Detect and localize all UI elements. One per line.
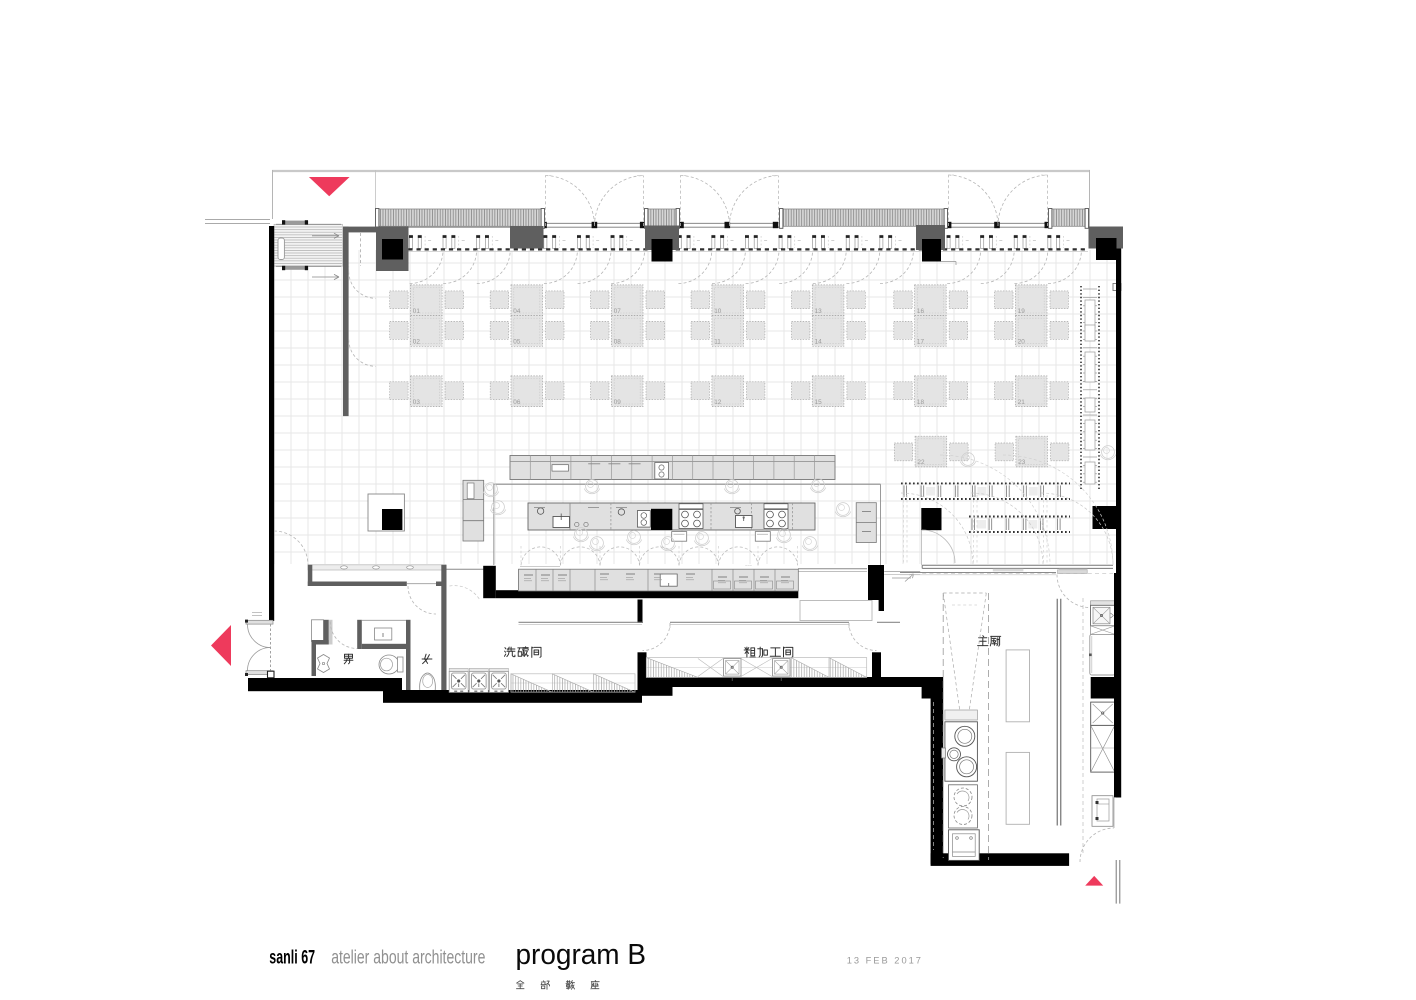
svg-text:04: 04 xyxy=(513,308,521,315)
svg-text:21: 21 xyxy=(1018,399,1026,406)
svg-text:05: 05 xyxy=(513,339,521,346)
svg-text:01: 01 xyxy=(413,308,421,315)
svg-text:03: 03 xyxy=(413,399,421,406)
svg-text:16: 16 xyxy=(917,308,925,315)
svg-text:08: 08 xyxy=(614,339,622,346)
svg-text:23: 23 xyxy=(1018,459,1026,466)
svg-text:12: 12 xyxy=(714,399,722,406)
svg-text:14: 14 xyxy=(815,339,823,346)
svg-text:sanli 67: sanli 67 xyxy=(269,948,315,969)
svg-text:18: 18 xyxy=(917,399,925,406)
svg-text:20: 20 xyxy=(1018,339,1026,346)
svg-text:09: 09 xyxy=(614,399,622,406)
svg-text:atelier about architecture: atelier about architecture xyxy=(331,948,485,969)
svg-text:02: 02 xyxy=(413,339,421,346)
svg-text:17: 17 xyxy=(917,339,925,346)
svg-text:program B: program B xyxy=(516,939,647,971)
svg-text:22: 22 xyxy=(917,459,925,466)
svg-text:15: 15 xyxy=(815,399,823,406)
svg-text:10: 10 xyxy=(714,308,722,315)
svg-text:06: 06 xyxy=(513,399,521,406)
svg-text:~~~: ~~~ xyxy=(745,563,753,568)
svg-text:11: 11 xyxy=(714,339,721,346)
svg-text:19: 19 xyxy=(1018,308,1026,315)
svg-text:07: 07 xyxy=(614,308,622,315)
svg-text:13 FEB 2017: 13 FEB 2017 xyxy=(847,955,923,965)
svg-text:13: 13 xyxy=(815,308,823,315)
